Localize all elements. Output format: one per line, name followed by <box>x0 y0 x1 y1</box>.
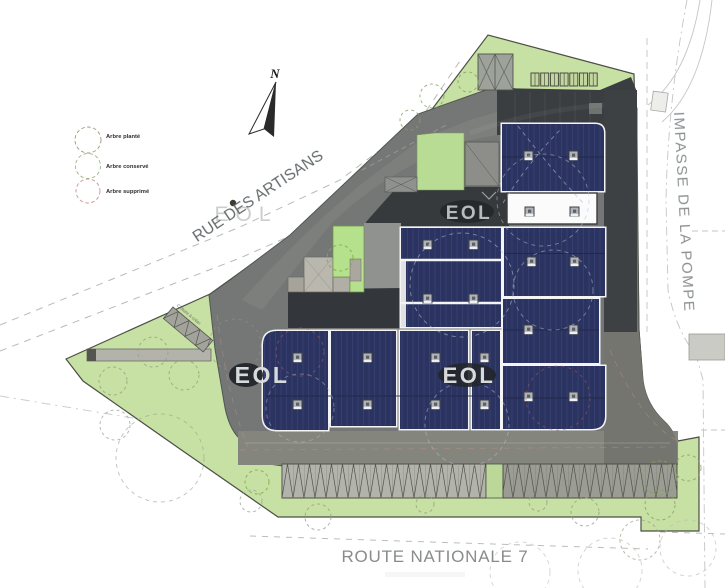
svg-text:EOL: EOL <box>235 362 290 388</box>
svg-text:ROUTE NATIONALE 7: ROUTE NATIONALE 7 <box>341 547 528 566</box>
svg-text:EOL: EOL <box>446 203 493 224</box>
svg-text:Arbre planté: Arbre planté <box>106 134 141 140</box>
svg-text:N: N <box>269 66 280 81</box>
svg-text:EOL: EOL <box>443 363 496 388</box>
svg-text:Arbre conservé: Arbre conservé <box>106 164 149 170</box>
svg-text:Arbre supprimé: Arbre supprimé <box>106 189 150 195</box>
